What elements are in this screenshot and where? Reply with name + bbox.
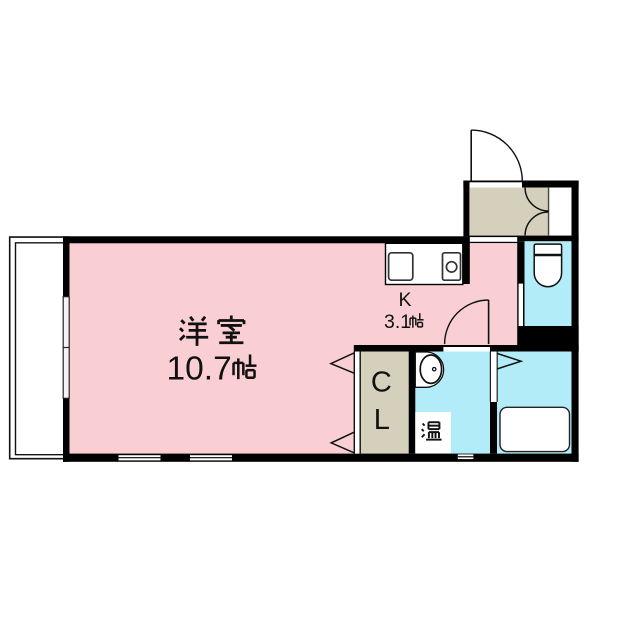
svg-text:L: L — [374, 404, 390, 436]
svg-text:K: K — [398, 289, 411, 311]
svg-text:10.7: 10.7 — [167, 351, 232, 388]
svg-text:3.1: 3.1 — [384, 311, 411, 333]
svg-text:C: C — [371, 367, 392, 399]
